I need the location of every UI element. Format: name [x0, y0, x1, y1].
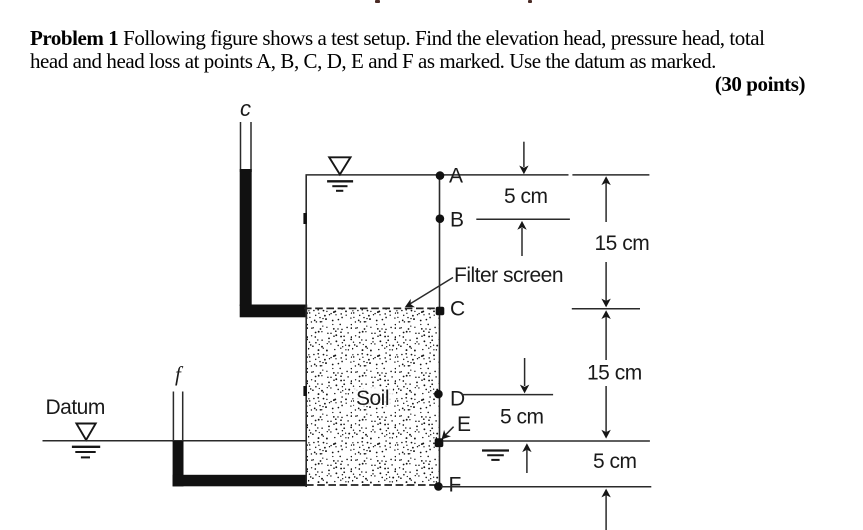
- svg-text:E: E: [457, 413, 471, 436]
- svg-text:5 cm: 5 cm: [500, 406, 544, 429]
- svg-text:B: B: [450, 209, 464, 232]
- svg-text:F: F: [449, 474, 461, 497]
- svg-text:c: c: [240, 96, 251, 121]
- svg-text:C: C: [450, 297, 465, 320]
- svg-text:5 cm: 5 cm: [593, 450, 637, 473]
- svg-text:f: f: [175, 362, 184, 386]
- svg-text:15 cm: 15 cm: [595, 232, 650, 255]
- svg-text:Soil: Soil: [356, 387, 389, 410]
- svg-text:5 cm: 5 cm: [504, 185, 548, 208]
- svg-text:Datum: Datum: [46, 396, 105, 419]
- svg-text:A: A: [449, 165, 463, 188]
- svg-text:D: D: [450, 388, 465, 411]
- svg-text:Filter screen: Filter screen: [454, 264, 563, 287]
- svg-text:15 cm: 15 cm: [587, 362, 642, 385]
